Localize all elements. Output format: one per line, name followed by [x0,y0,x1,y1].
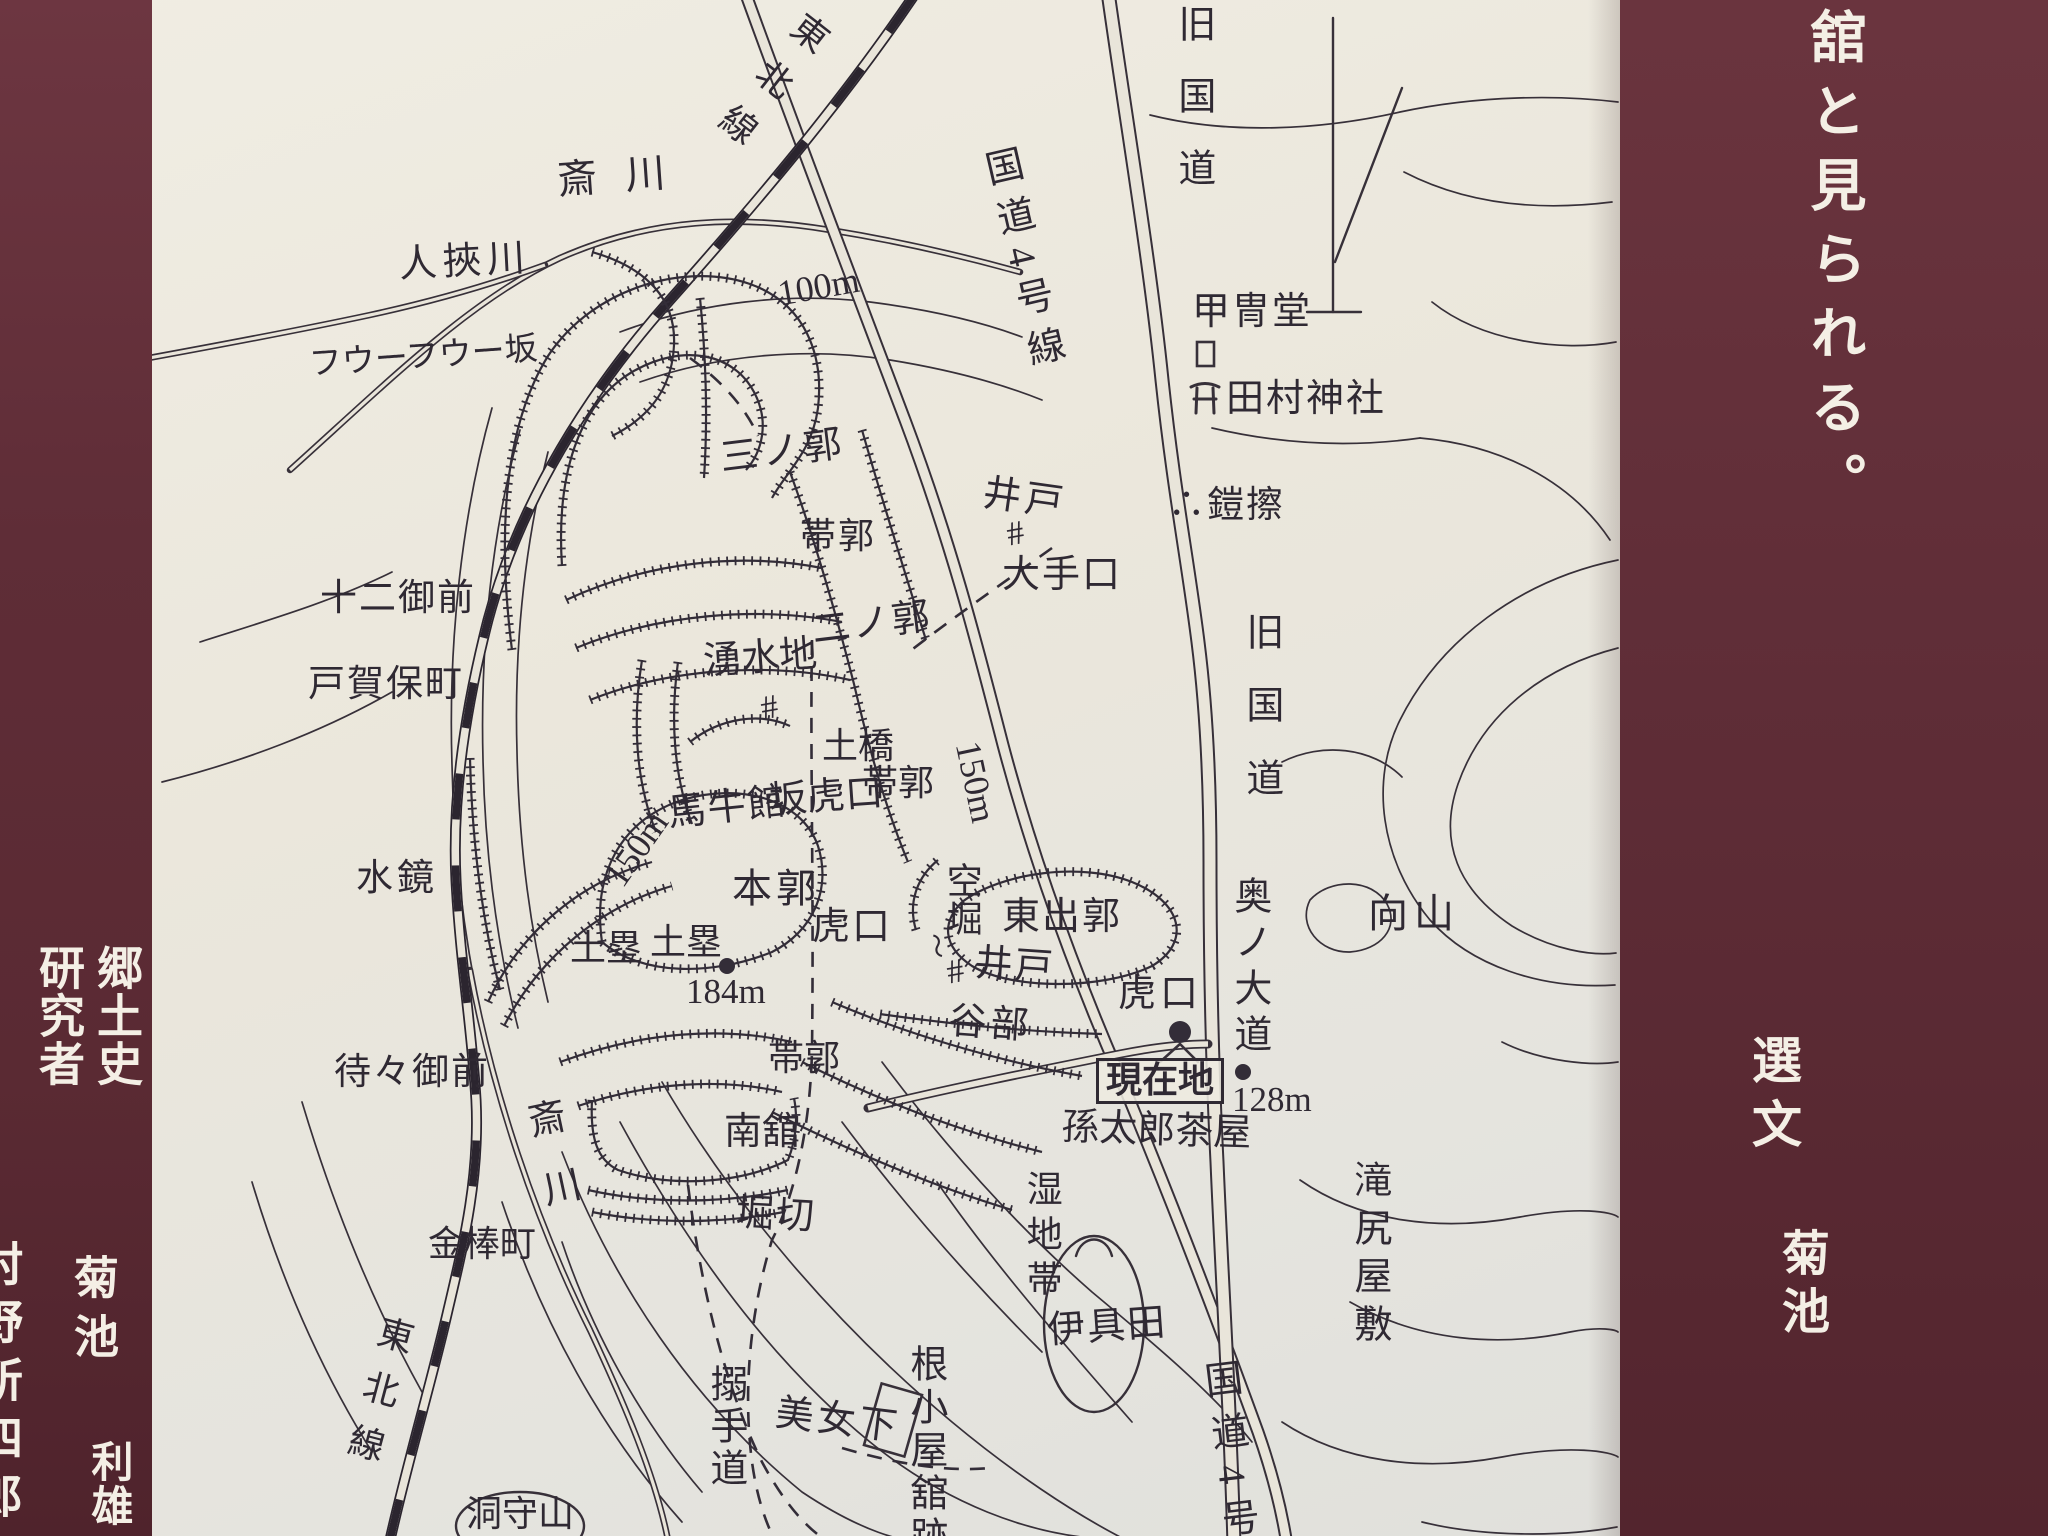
kacchudo-label: 甲冑堂 [1192,293,1312,333]
left-title-sub: 研究者 [36,944,82,1088]
minamidate-label: 南舘 [724,1113,800,1153]
mizukagami-label: 水鏡 [356,860,438,899]
genzaichi-label: 現在地 [1096,1058,1224,1104]
mukaiyama-label: 向山 [1368,893,1460,935]
well-label-east: 井戸 [973,944,1056,989]
frame-shadow [1588,0,1620,1536]
old-national-road-label-top: 旧国道 [1172,4,1212,220]
yoroizure-label: ∴鎧擦 [1168,487,1285,526]
credit-name-label: 菊池 [1776,1228,1824,1344]
negoya-date-label: 根小屋舘跡 [904,1344,944,1536]
kanabocho-label: 金棒町 [428,1226,536,1264]
elevation-128m-label: 128m [1232,1082,1312,1119]
old-national-road-label-mid: 旧国道 [1240,612,1280,831]
karabori-label: 空堀 [942,862,980,938]
left-edge-clipped-text: 村野所四郎 [0,1240,20,1530]
left-title-main: 郷土史 [94,944,140,1088]
spring-label: 湧水地 [702,635,819,683]
oku-no-daido-label: 奥ノ大道 [1228,876,1268,1060]
iguta-label: 伊具田 [1046,1304,1169,1352]
horamoriyama-label: 洞守山 [466,1496,574,1534]
sai-river-label-top: 斎川 [556,151,695,202]
wetland-label: 湿地帯 [1022,1170,1060,1305]
dorui-label-west: 土塁 [570,930,642,968]
karametedo-label: 搦手道 [704,1364,744,1490]
right-headline: 舘と見られる。 [1806,8,1862,526]
elevation-dot-128m [1235,1064,1251,1080]
dorui-label-east: 土塁 [650,924,722,962]
tamura-shrine-label: 田村神社 [1226,380,1386,420]
twelve-gozen-label: 十二御前 [320,580,476,619]
horikiri-label: 堀切 [735,1194,817,1238]
torii-icon [1191,384,1219,414]
credit-role-label: 選文 [1748,1034,1798,1162]
togabo-cho-label: 戸賀保町 [308,666,464,705]
oteguchi-label: 大手口 [1002,556,1122,596]
obi-kuruwa-label-north: 帯郭 [800,518,876,556]
main-bailey-label: 本郭 [732,868,820,910]
signboard-photo: 東北線斎川人挾川フウーフウー坂100m国道4号線旧国道甲冑堂田村神社∴鎧擦井戸大… [0,0,2048,1536]
obi-kuruwa-label-south: 帯郭 [768,1040,840,1078]
left-name-given: 利雄 [88,1440,130,1528]
koguchi-label-center: 虎口 [812,908,892,948]
dobashi-label: 土橋 [822,728,894,766]
elevation-184m-label: 184m [686,974,766,1011]
east-bailey-label: 東出郭 [1002,898,1122,938]
left-name-family: 菊池 [70,1254,115,1372]
building-square-icon [1197,342,1214,366]
magotaro-chaya-label: 孫太郎茶屋 [1061,1108,1252,1154]
koguchi-label-east: 虎口 [1118,975,1202,1015]
hitohasami-river-label: 人挾川 [398,239,532,286]
takijiri-yashiki-label: 滝尻屋敷 [1348,1160,1388,1352]
machimachi-gozen-label: 待々御前 [334,1054,490,1093]
tanibu-label: 谷部 [947,1002,1034,1048]
pole-icon [1307,18,1402,312]
